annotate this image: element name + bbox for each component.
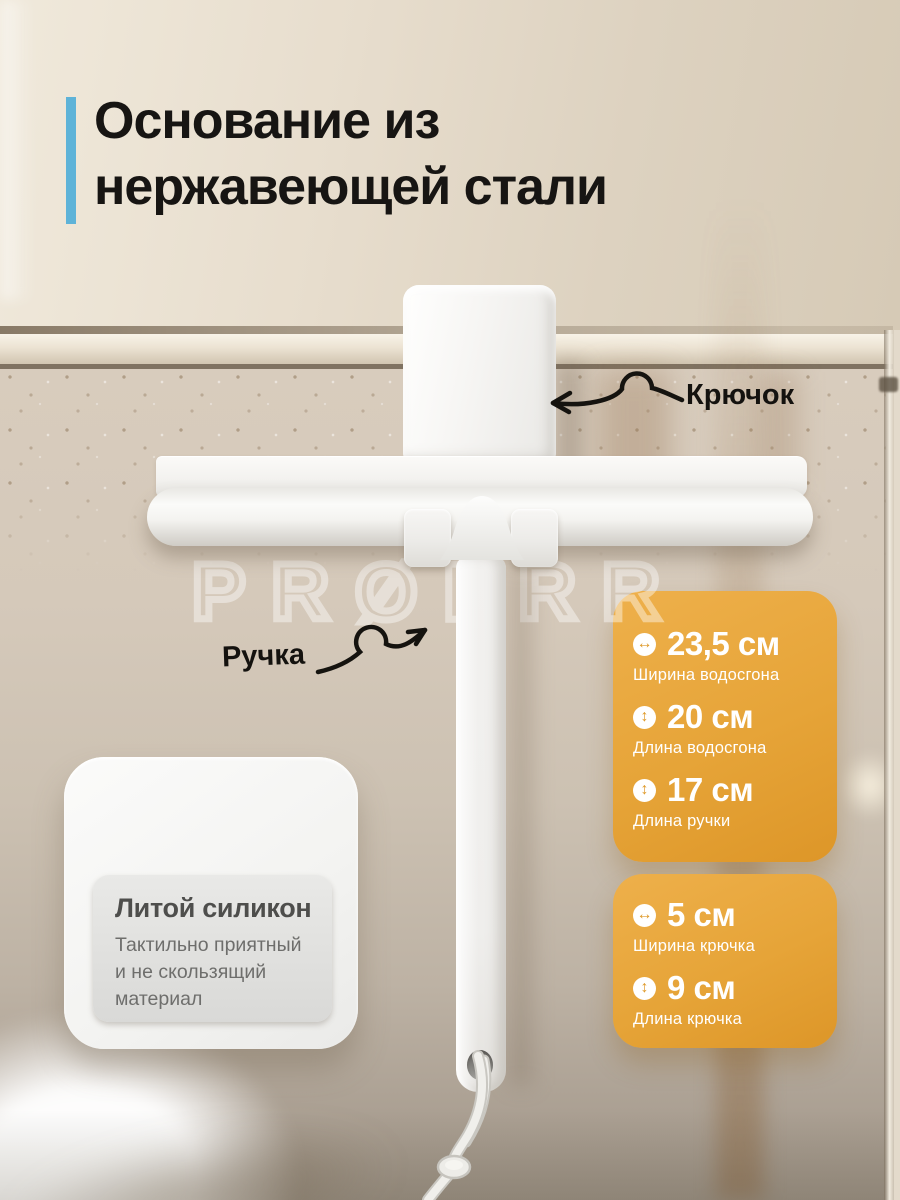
glass-right-edge xyxy=(884,330,894,1200)
handle-shadow xyxy=(510,565,532,1085)
material-panel: Литой силикон Тактильно приятный и не ск… xyxy=(93,875,332,1022)
spec-value: 17 см xyxy=(667,771,753,809)
spec-label: Ширина крючка xyxy=(633,937,823,956)
spec-card-hook: ↔ 5 см Ширина крючка ↕ 9 см Длина крючка xyxy=(613,874,837,1048)
hanging-cord xyxy=(380,1040,580,1200)
spec-row: ↕ 17 см Длина ручки xyxy=(633,771,823,831)
material-title: Литой силикон xyxy=(115,893,332,924)
squeegee-hook xyxy=(403,285,556,463)
spec-value: 20 см xyxy=(667,698,753,736)
page-title-line1: Основание из xyxy=(94,88,607,154)
spec-row: ↕ 20 см Длина водосгона xyxy=(633,698,823,758)
handle-joint xyxy=(440,494,524,564)
wall-right-strip xyxy=(894,330,900,1200)
glass-clamp xyxy=(879,377,898,392)
spec-label: Ширина водосгона xyxy=(633,666,823,685)
spec-row: ↔ 5 см Ширина крючка xyxy=(633,896,823,956)
page-title: Основание из нержавеющей стали xyxy=(94,88,607,220)
length-arrow-icon: ↕ xyxy=(633,977,656,1000)
material-card: Литой силикон Тактильно приятный и не ск… xyxy=(64,757,358,1049)
material-description: Тактильно приятный и не скользящий матер… xyxy=(115,932,332,1013)
spec-label: Длина водосгона xyxy=(633,739,823,758)
handle-callout-label: Ручка xyxy=(221,639,305,675)
product-infographic: PRØFRR Основание из нержавеющей стали Кр… xyxy=(0,0,900,1200)
squeegee-handle xyxy=(456,556,506,1092)
handle-arrow-icon xyxy=(308,598,443,686)
page-title-line2: нержавеющей стали xyxy=(94,154,607,220)
spec-label: Длина ручки xyxy=(633,812,823,831)
hook-arrow-icon xyxy=(535,358,687,420)
length-arrow-icon: ↕ xyxy=(633,706,656,729)
spec-value: 9 см xyxy=(667,969,735,1007)
length-arrow-icon: ↕ xyxy=(633,779,656,802)
width-arrow-icon: ↔ xyxy=(633,904,656,927)
hook-callout-label: Крючок xyxy=(686,379,794,412)
spec-row: ↕ 9 см Длина крючка xyxy=(633,969,823,1029)
spec-value: 5 см xyxy=(667,896,735,934)
spec-label: Длина крючка xyxy=(633,1010,823,1029)
accent-bar xyxy=(66,97,76,224)
wall-light-strip xyxy=(0,0,34,300)
